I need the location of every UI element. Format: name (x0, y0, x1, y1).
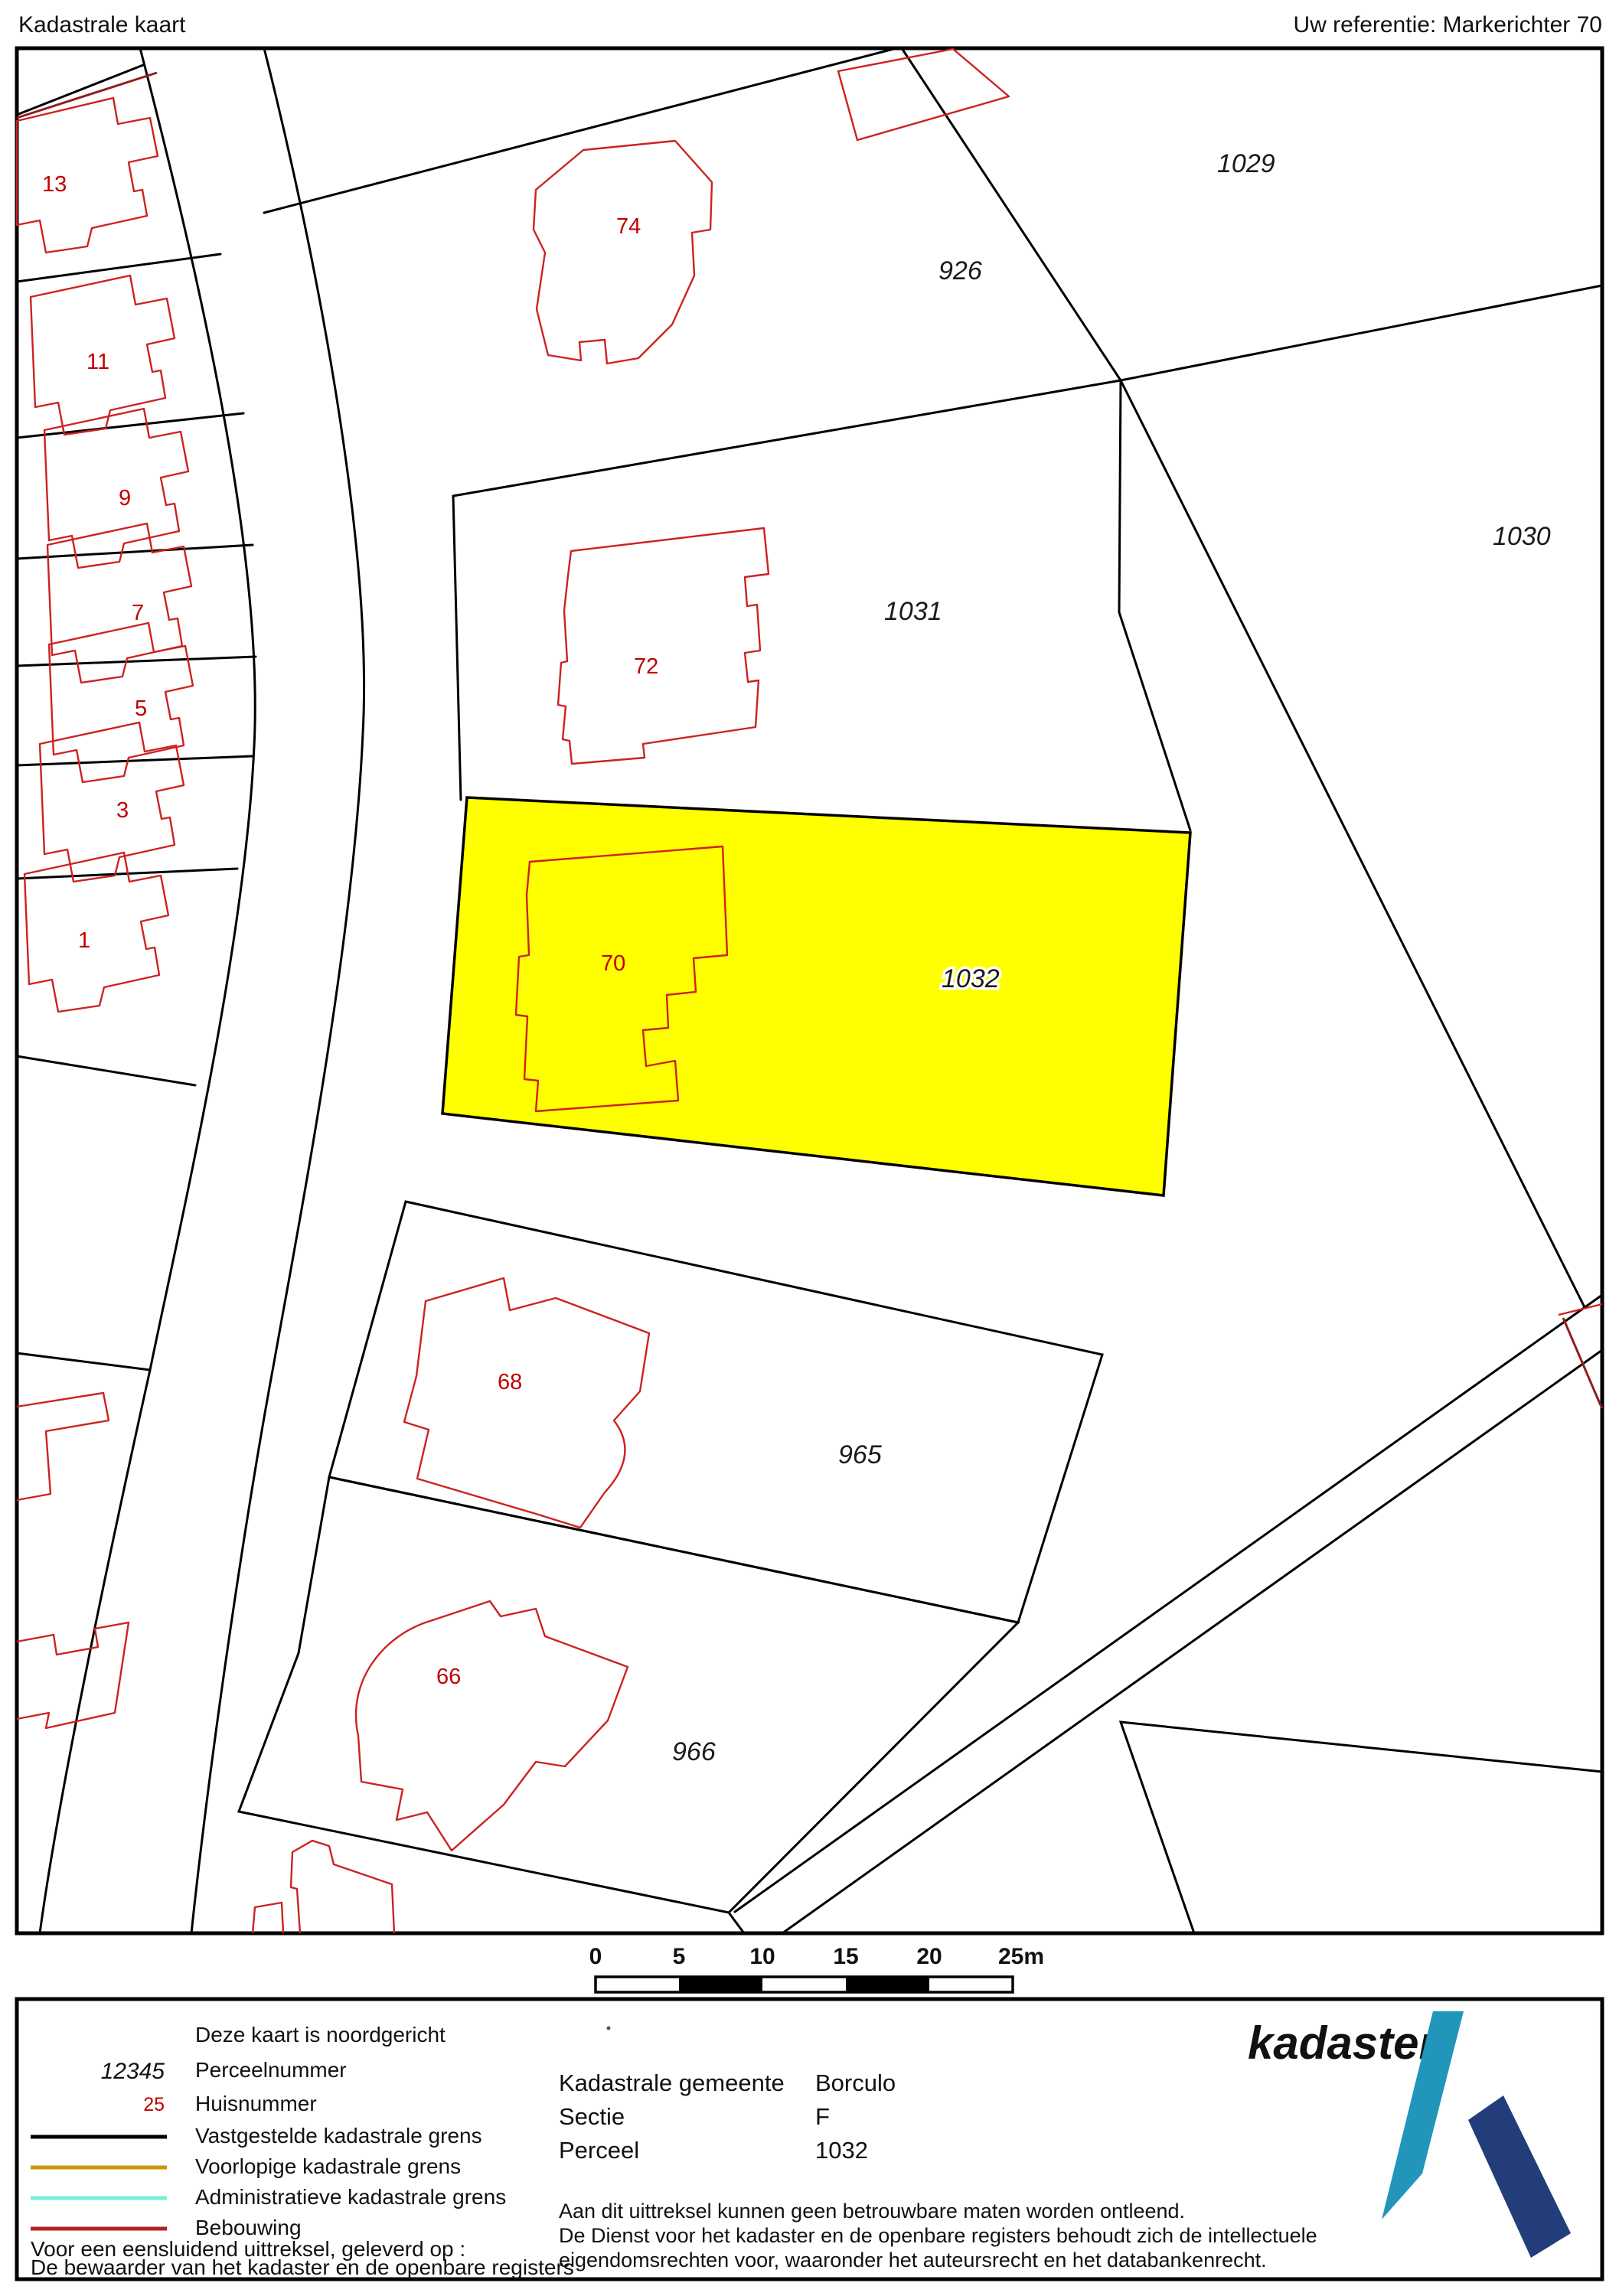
reference-text: Uw referentie: Markerichter 70 (1294, 12, 1602, 38)
legend-sample-parcelnumber: 12345 (101, 2059, 165, 2084)
kadaster-logo-word: kadaster (1248, 2017, 1439, 2069)
legend-north-note: Deze kaart is noordgericht (195, 2023, 446, 2047)
house-label-74: 74 (616, 214, 641, 239)
page-title: Kadastrale kaart (18, 12, 186, 38)
building-right-partial (1559, 1304, 1602, 1315)
house-label-68: 68 (498, 1370, 522, 1394)
building-13 (17, 98, 158, 253)
house-label-70: 70 (601, 951, 625, 976)
legend-footer-2: De bewaarder van het kadaster en de open… (31, 2255, 574, 2279)
legend-sample-housenumber: 25 (143, 2094, 165, 2115)
cadastral-map-svg: Kadastrale kaart Uw referentie: Markeric… (0, 0, 1619, 2296)
parcel-label-1032: 1032 (942, 964, 1000, 993)
parcel-label-966: 966 (672, 1737, 716, 1766)
scale-tick-15: 15 (833, 1944, 858, 1969)
scale-tick-20: 20 (916, 1944, 942, 1969)
legend-label-bebouwing: Bebouwing (195, 2216, 302, 2239)
house-label-9: 9 (119, 486, 131, 510)
info-value-perceel: 1032 (815, 2137, 868, 2164)
building-66 (356, 1601, 628, 1851)
parcel-label-965: 965 (838, 1440, 882, 1469)
parcel-label-1029: 1029 (1217, 149, 1275, 178)
scale-bar-outline (596, 1977, 1013, 1992)
scale-bar: 0 5 10 15 20 25m (589, 1944, 1044, 1992)
info-label-perceel: Perceel (559, 2137, 639, 2164)
legend-label-voorlopig: Voorlopige kadastrale grens (195, 2154, 461, 2178)
disclaimer-line-3: eigendomsrechten voor, waaronder het aut… (559, 2249, 1267, 2272)
scale-tick-5: 5 (673, 1944, 686, 1969)
scale-tick-0: 0 (589, 1944, 602, 1969)
scale-tick-10: 10 (749, 1944, 775, 1969)
building-left-partial-1 (17, 1393, 109, 1500)
info-value-sectie: F (815, 2103, 830, 2130)
disclaimer-line-1: Aan dit uittreksel kunnen geen betrouwba… (559, 2200, 1185, 2223)
parcel-label-1031: 1031 (884, 597, 942, 626)
building-7 (47, 523, 191, 683)
house-label-5: 5 (135, 696, 147, 721)
disclaimer-line-2: De Dienst voor het kadaster en de openba… (559, 2224, 1317, 2247)
scale-tick-25m: 25m (998, 1944, 1044, 1969)
building-3 (40, 722, 184, 882)
house-label-11: 11 (86, 350, 109, 374)
cadastral-extract-page: Kadastrale kaart Uw referentie: Markeric… (0, 0, 1619, 2296)
legend-label-parcelnumber: Perceelnummer (195, 2058, 347, 2082)
info-value-gemeente: Borculo (815, 2069, 896, 2096)
building-bottom-partial (253, 1841, 394, 1933)
info-label-sectie: Sectie (559, 2103, 625, 2130)
legend-label-vastgesteld: Vastgestelde kadastrale grens (195, 2124, 482, 2148)
legend-box: Deze kaart is noordgericht 12345 Perceel… (17, 1999, 1602, 2279)
stray-dot (607, 2027, 611, 2030)
map-area: 926 1029 1030 1031 1032 965 966 13 11 9 … (17, 48, 1602, 1933)
legend-label-housenumber: Huisnummer (195, 2092, 317, 2115)
house-label-13: 13 (42, 172, 67, 197)
house-label-1: 1 (78, 928, 90, 953)
scale-segment-black-1 (679, 1977, 762, 1992)
house-label-72: 72 (634, 654, 658, 679)
house-label-3: 3 (116, 798, 129, 823)
house-label-7: 7 (132, 601, 144, 625)
building-74 (534, 141, 712, 364)
building-72 (558, 528, 769, 764)
building-right-partial-dark (1563, 1318, 1602, 1408)
building-68 (404, 1278, 649, 1528)
highlight-parcel-1032 (442, 797, 1190, 1195)
legend-label-administratief: Administratieve kadastrale grens (195, 2185, 506, 2209)
building-left-partial-2 (17, 1623, 129, 1728)
house-label-66: 66 (436, 1665, 461, 1689)
building-top-partial (838, 49, 1009, 140)
info-label-gemeente: Kadastrale gemeente (559, 2069, 785, 2096)
parcel-label-926: 926 (938, 256, 982, 285)
parcel-label-1030: 1030 (1493, 522, 1551, 551)
scale-segment-black-2 (846, 1977, 929, 1992)
